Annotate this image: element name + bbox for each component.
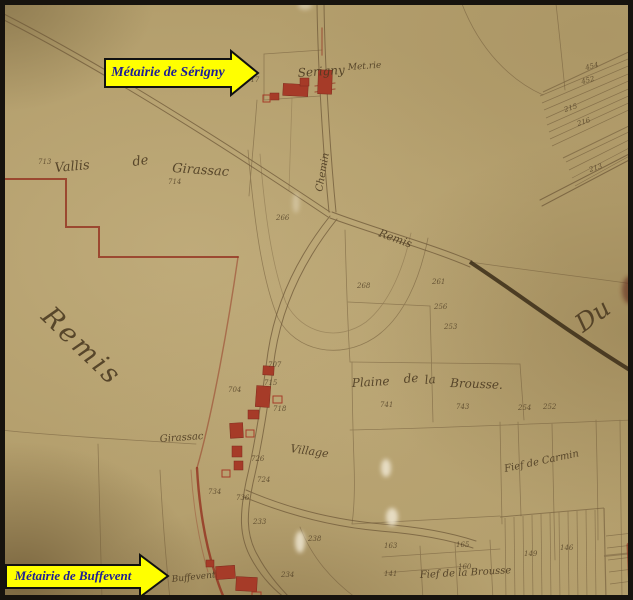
parcel-number: 724 [257, 476, 270, 484]
cadastral-map: SerignyMet.rieCheminRemisVallisdeGirassa… [0, 0, 633, 600]
map-label-fief-carmin: Fief de Carmin [502, 448, 580, 475]
parcel-number: 452 [579, 75, 595, 87]
map-label-village: Village [290, 442, 330, 460]
parcel-number: 160 [458, 563, 472, 571]
parcel-number: 704 [228, 386, 241, 394]
parcel-number: 213 [587, 162, 604, 174]
parcel-number: 234 [280, 571, 294, 579]
parcel-number: 233 [252, 518, 267, 526]
map-label-remis-road: Remis [376, 226, 414, 250]
parcel-number: 261 [431, 278, 445, 286]
ink-stain [622, 276, 633, 304]
map-label-vallis: Vallis [54, 158, 91, 176]
parcel-number: 741 [380, 401, 393, 409]
map-frame: SerignyMet.rieCheminRemisVallisdeGirassa… [0, 0, 633, 600]
map-label-girassac-village: Girassac [159, 431, 204, 445]
parcel-number: 254 [517, 404, 531, 412]
parcel-number: 718 [273, 405, 287, 413]
map-label-serigny-hamlet: Serigny [297, 63, 345, 80]
parcel-number: 163 [384, 542, 398, 550]
annotation-serigny: Métairie de Sérigny [104, 50, 260, 96]
parcel-number: 454 [583, 61, 599, 72]
parcel-number: 707 [268, 361, 282, 369]
annotation-buffevent: Métairie de Buffevent [5, 553, 171, 599]
map-label-serigny-met: Met.rie [347, 61, 382, 73]
map-label-plaine-de: de [403, 371, 419, 386]
annotation-label-serigny: Métairie de Sérigny [106, 59, 230, 87]
parcel-number: 743 [456, 403, 470, 411]
parcel-number: 165 [456, 541, 470, 549]
map-label-remis-big: Remis [34, 300, 128, 392]
parcel-number: 726 [251, 455, 265, 463]
parcel-number: 736 [236, 494, 250, 502]
parcel-number: 734 [208, 488, 221, 496]
map-label-plaine-brousse: Brousse. [449, 376, 503, 392]
parcel-number: 238 [307, 535, 322, 543]
map-label-buffevent-hamlet: Buffevent [170, 570, 216, 585]
map-label-plaine-la: la [424, 372, 436, 387]
parcel-number: 253 [443, 323, 458, 331]
map-label-chemin: Chemin [314, 152, 332, 192]
parcel-lines-layer [0, 4, 633, 600]
parcel-number: 714 [168, 178, 181, 186]
parcel-number: 141 [384, 570, 397, 578]
map-label-plaine: Plaine [350, 374, 389, 390]
parcel-number: 216 [575, 116, 592, 128]
parcel-number: 266 [275, 214, 290, 222]
labels-layer: SerignyMet.rieCheminRemisVallisdeGirassa… [34, 61, 615, 585]
parcel-number: 149 [524, 550, 538, 558]
parcel-number: 268 [356, 282, 371, 290]
parcel-number: 252 [542, 403, 557, 411]
map-label-du-big: Du [569, 293, 616, 338]
parcel-number: 256 [433, 303, 448, 311]
annotation-label-buffevent: Métairie de Buffevent [7, 564, 139, 588]
map-label-vallis-de: de [131, 153, 149, 170]
parcel-number: 146 [560, 544, 574, 552]
strip-fields-layer [500, 50, 633, 600]
parcel-number: 715 [264, 379, 278, 387]
parcel-number: 713 [38, 158, 52, 166]
